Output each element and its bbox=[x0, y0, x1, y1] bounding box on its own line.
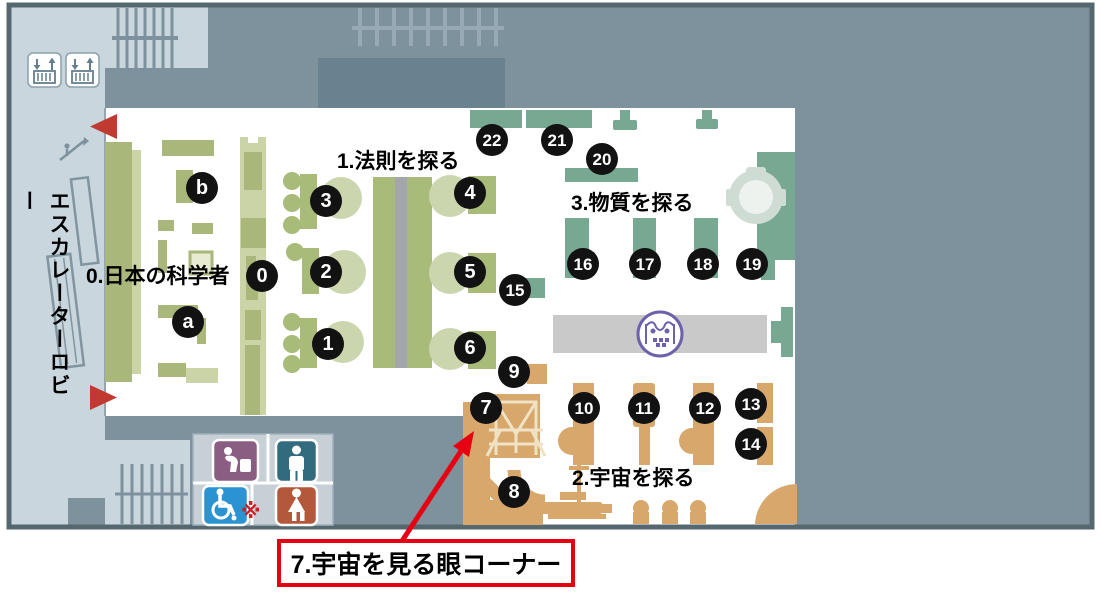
marker-18: 18 bbox=[687, 248, 719, 280]
marker-19: 19 bbox=[736, 248, 768, 280]
marker-16: 16 bbox=[567, 248, 599, 280]
note-mark: ※ bbox=[241, 499, 260, 524]
callout-box: 7.宇宙を見る眼コーナー bbox=[277, 539, 575, 587]
marker-12: 12 bbox=[689, 392, 721, 424]
marker-2: 2 bbox=[310, 256, 342, 288]
zone2-title: 2.宇宙を探る bbox=[572, 462, 695, 492]
marker-7: 7 bbox=[470, 392, 502, 424]
zone0-title: 0.日本の科学者 bbox=[86, 260, 230, 290]
marker-a: a bbox=[172, 306, 204, 338]
floor-map: b0a32145615978222120161718191011121314 エ… bbox=[0, 0, 1101, 599]
marker-10: 10 bbox=[568, 392, 600, 424]
marker-15: 15 bbox=[499, 274, 531, 306]
marker-6: 6 bbox=[454, 332, 486, 364]
marker-3: 3 bbox=[310, 185, 342, 217]
zone3-title: 3.物質を探る bbox=[571, 187, 694, 217]
markers-layer: b0a32145615978222120161718191011121314 bbox=[0, 0, 1101, 599]
marker-0: 0 bbox=[246, 260, 278, 292]
zone1-title: 1.法則を探る bbox=[337, 145, 460, 175]
marker-13: 13 bbox=[735, 388, 767, 420]
marker-8: 8 bbox=[498, 476, 530, 508]
marker-5: 5 bbox=[454, 256, 486, 288]
marker-11: 11 bbox=[628, 392, 660, 424]
marker-14: 14 bbox=[735, 428, 767, 460]
marker-9: 9 bbox=[498, 356, 530, 388]
marker-4: 4 bbox=[454, 177, 486, 209]
marker-21: 21 bbox=[541, 124, 573, 156]
marker-b: b bbox=[186, 172, 218, 204]
marker-17: 17 bbox=[629, 248, 661, 280]
marker-22: 22 bbox=[476, 124, 508, 156]
marker-1: 1 bbox=[312, 328, 344, 360]
marker-20: 20 bbox=[586, 143, 618, 175]
escalator-lobby-label: エスカレーターロビー bbox=[13, 190, 73, 405]
